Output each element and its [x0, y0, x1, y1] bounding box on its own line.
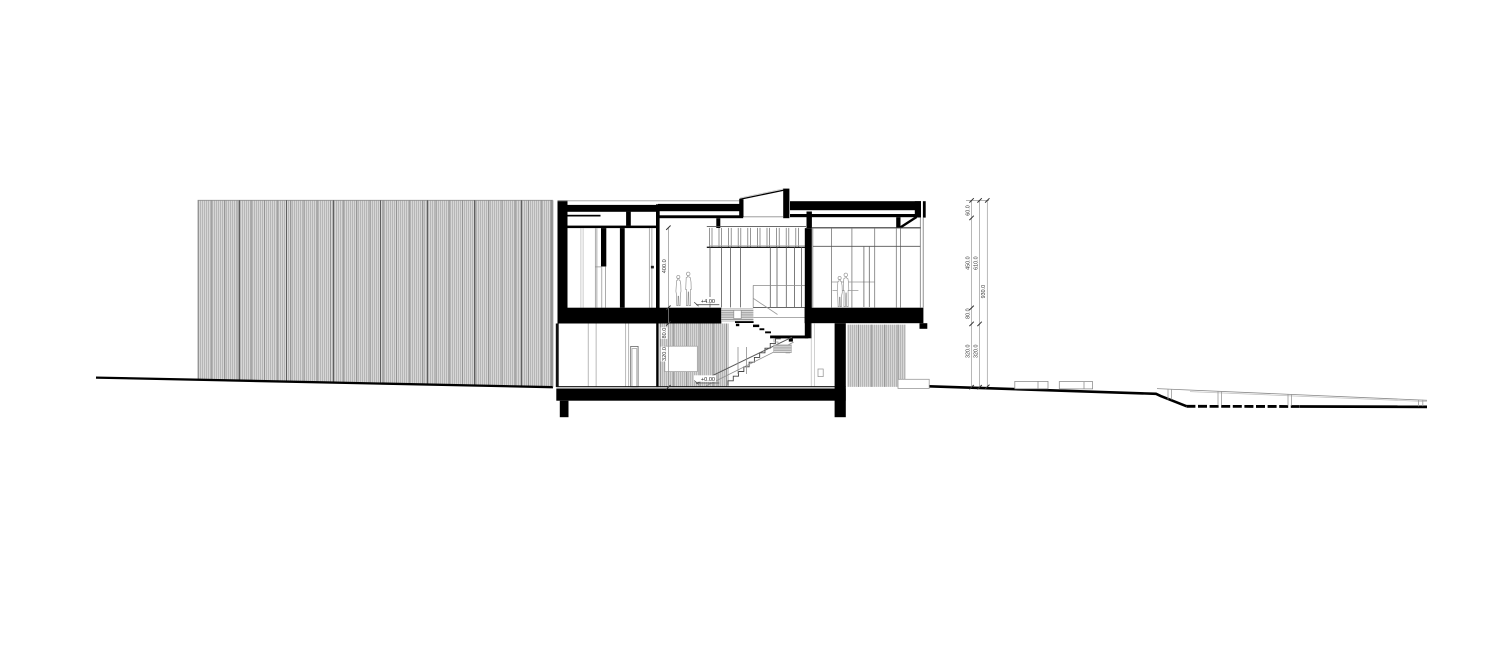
- svg-text:320.0: 320.0: [662, 347, 668, 361]
- svg-text:60.0: 60.0: [965, 205, 971, 216]
- svg-text:80.0: 80.0: [965, 308, 971, 319]
- svg-text:400.0: 400.0: [662, 259, 668, 273]
- svg-text:450.0: 450.0: [965, 256, 971, 270]
- svg-text:930.0: 930.0: [981, 285, 987, 299]
- svg-text:320.0: 320.0: [965, 345, 971, 359]
- svg-text:+4.00: +4.00: [701, 299, 715, 305]
- svg-text:80.0: 80.0: [662, 328, 668, 339]
- svg-text:610.0: 610.0: [973, 256, 979, 270]
- svg-text:320.0: 320.0: [973, 345, 979, 359]
- svg-text:+0.00: +0.00: [701, 377, 715, 383]
